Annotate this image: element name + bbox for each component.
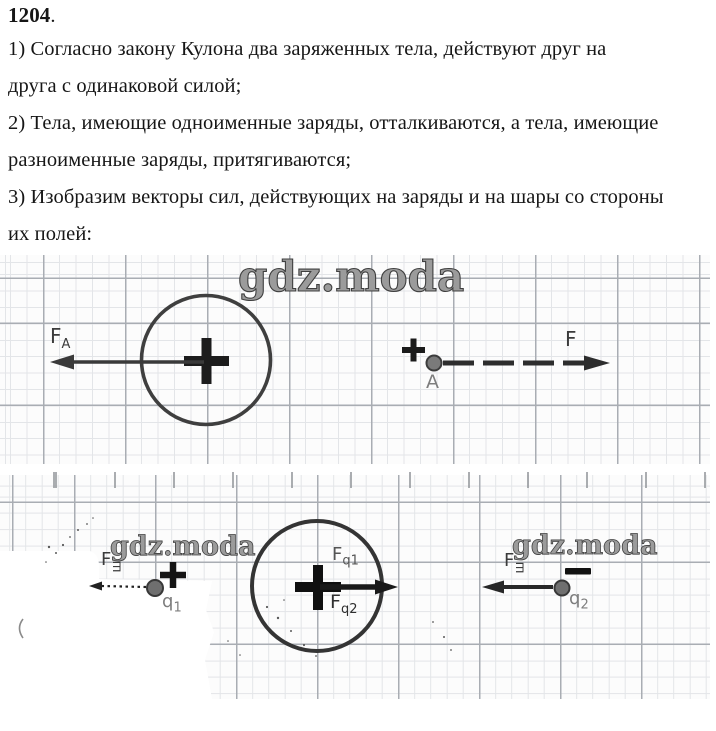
label-q1: q1 [162,593,182,615]
watermark-gdz-moda-right: gdz.moda [512,530,657,561]
charge-q2-dot [555,581,570,596]
charge-q1-dot [147,580,163,596]
diagram-shapes [0,0,716,731]
plus-sign-charge-A [402,339,425,362]
minus-sign-q2 [565,568,591,575]
watermark-gdz-moda-top: gdz.moda [238,252,464,301]
label-force-Fq2: Fq2 [330,593,357,616]
label-force-Fq1: Fq1 [332,546,359,568]
force-F-arrowhead [584,356,610,371]
label-point-A: A [426,373,439,392]
force-Fq-arrowhead [375,580,398,595]
point-charge-A-dot [427,356,442,371]
force-FA-arrowhead [50,355,74,370]
label-force-FA: FA [50,326,70,351]
force-Fsh2-arrowhead [482,581,504,594]
solution-page: 1204. 1) Согласно закону Кулона два заря… [0,0,716,731]
label-force-F: F [565,329,577,349]
label-q2: q2 [569,590,589,612]
watermark-gdz-moda-left: gdz.moda [110,531,255,562]
